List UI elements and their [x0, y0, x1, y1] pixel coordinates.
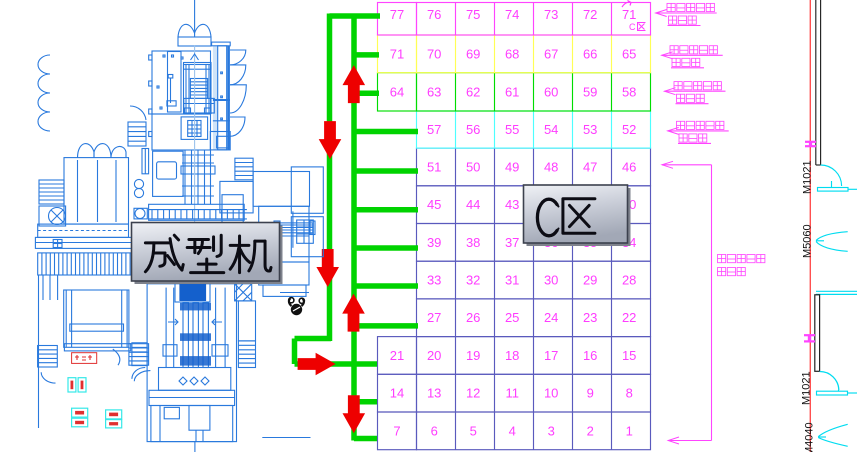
svg-text:13: 13: [427, 386, 441, 401]
svg-text:6: 6: [431, 423, 438, 438]
svg-text:71: 71: [622, 7, 636, 22]
svg-text:M1021: M1021: [801, 371, 813, 405]
svg-text:75: 75: [466, 7, 480, 22]
svg-text:10: 10: [544, 386, 558, 401]
svg-text:56: 56: [466, 122, 480, 137]
svg-text:70: 70: [427, 46, 441, 61]
svg-text:M4040: M4040: [804, 422, 816, 452]
svg-text:4: 4: [509, 423, 516, 438]
svg-text:17: 17: [544, 348, 558, 363]
svg-text:67: 67: [544, 46, 558, 61]
svg-text:27: 27: [427, 310, 441, 325]
svg-text:69: 69: [466, 46, 480, 61]
svg-text:C: C: [629, 22, 636, 32]
svg-text:2: 2: [587, 423, 594, 438]
svg-text:32: 32: [466, 273, 480, 288]
svg-text:77: 77: [390, 7, 404, 22]
svg-text:59: 59: [583, 84, 597, 99]
svg-text:24: 24: [544, 310, 558, 325]
svg-text:62: 62: [466, 84, 480, 99]
svg-text:31: 31: [505, 273, 519, 288]
svg-text:M1021: M1021: [802, 160, 814, 194]
svg-text:68: 68: [505, 46, 519, 61]
svg-text:5: 5: [470, 423, 477, 438]
svg-text:52: 52: [622, 122, 636, 137]
svg-text:12: 12: [466, 386, 480, 401]
svg-text:3: 3: [548, 423, 555, 438]
svg-text:54: 54: [544, 122, 558, 137]
svg-text:16: 16: [583, 348, 597, 363]
svg-text:39: 39: [427, 235, 441, 250]
svg-text:50: 50: [466, 159, 480, 174]
svg-text:48: 48: [544, 159, 558, 174]
svg-text:55: 55: [505, 122, 519, 137]
svg-text:25: 25: [505, 310, 519, 325]
svg-text:44: 44: [466, 197, 480, 212]
svg-text:9: 9: [587, 386, 594, 401]
svg-text:61: 61: [505, 84, 519, 99]
svg-text:74: 74: [505, 7, 519, 22]
svg-text:72: 72: [583, 7, 597, 22]
svg-text:43: 43: [505, 197, 519, 212]
svg-text:28: 28: [622, 273, 636, 288]
svg-text:58: 58: [622, 84, 636, 99]
svg-text:49: 49: [505, 159, 519, 174]
svg-text:20: 20: [427, 348, 441, 363]
svg-text:38: 38: [466, 235, 480, 250]
svg-text:23: 23: [583, 310, 597, 325]
svg-text:30: 30: [544, 273, 558, 288]
svg-text:37: 37: [505, 235, 519, 250]
svg-text:22: 22: [622, 310, 636, 325]
svg-text:26: 26: [466, 310, 480, 325]
svg-text:51: 51: [427, 159, 441, 174]
svg-text:63: 63: [427, 84, 441, 99]
svg-text:29: 29: [583, 273, 597, 288]
svg-text:7: 7: [393, 423, 400, 438]
svg-text:M5060: M5060: [802, 224, 814, 258]
svg-text:8: 8: [626, 386, 633, 401]
svg-text:21: 21: [390, 348, 404, 363]
svg-text:65: 65: [622, 46, 636, 61]
svg-text:47: 47: [583, 159, 597, 174]
svg-text:18: 18: [505, 348, 519, 363]
svg-text:15: 15: [622, 348, 636, 363]
svg-text:66: 66: [583, 46, 597, 61]
svg-text:19: 19: [466, 348, 480, 363]
svg-text:64: 64: [390, 84, 404, 99]
svg-text:53: 53: [583, 122, 597, 137]
svg-text:11: 11: [505, 386, 519, 401]
svg-text:45: 45: [427, 197, 441, 212]
svg-text:73: 73: [544, 7, 558, 22]
svg-text:33: 33: [427, 273, 441, 288]
svg-text:46: 46: [622, 159, 636, 174]
svg-text:14: 14: [390, 386, 404, 401]
svg-text:57: 57: [427, 122, 441, 137]
svg-text:71: 71: [390, 46, 404, 61]
svg-text:60: 60: [544, 84, 558, 99]
svg-text:76: 76: [427, 7, 441, 22]
svg-text:1: 1: [626, 423, 633, 438]
